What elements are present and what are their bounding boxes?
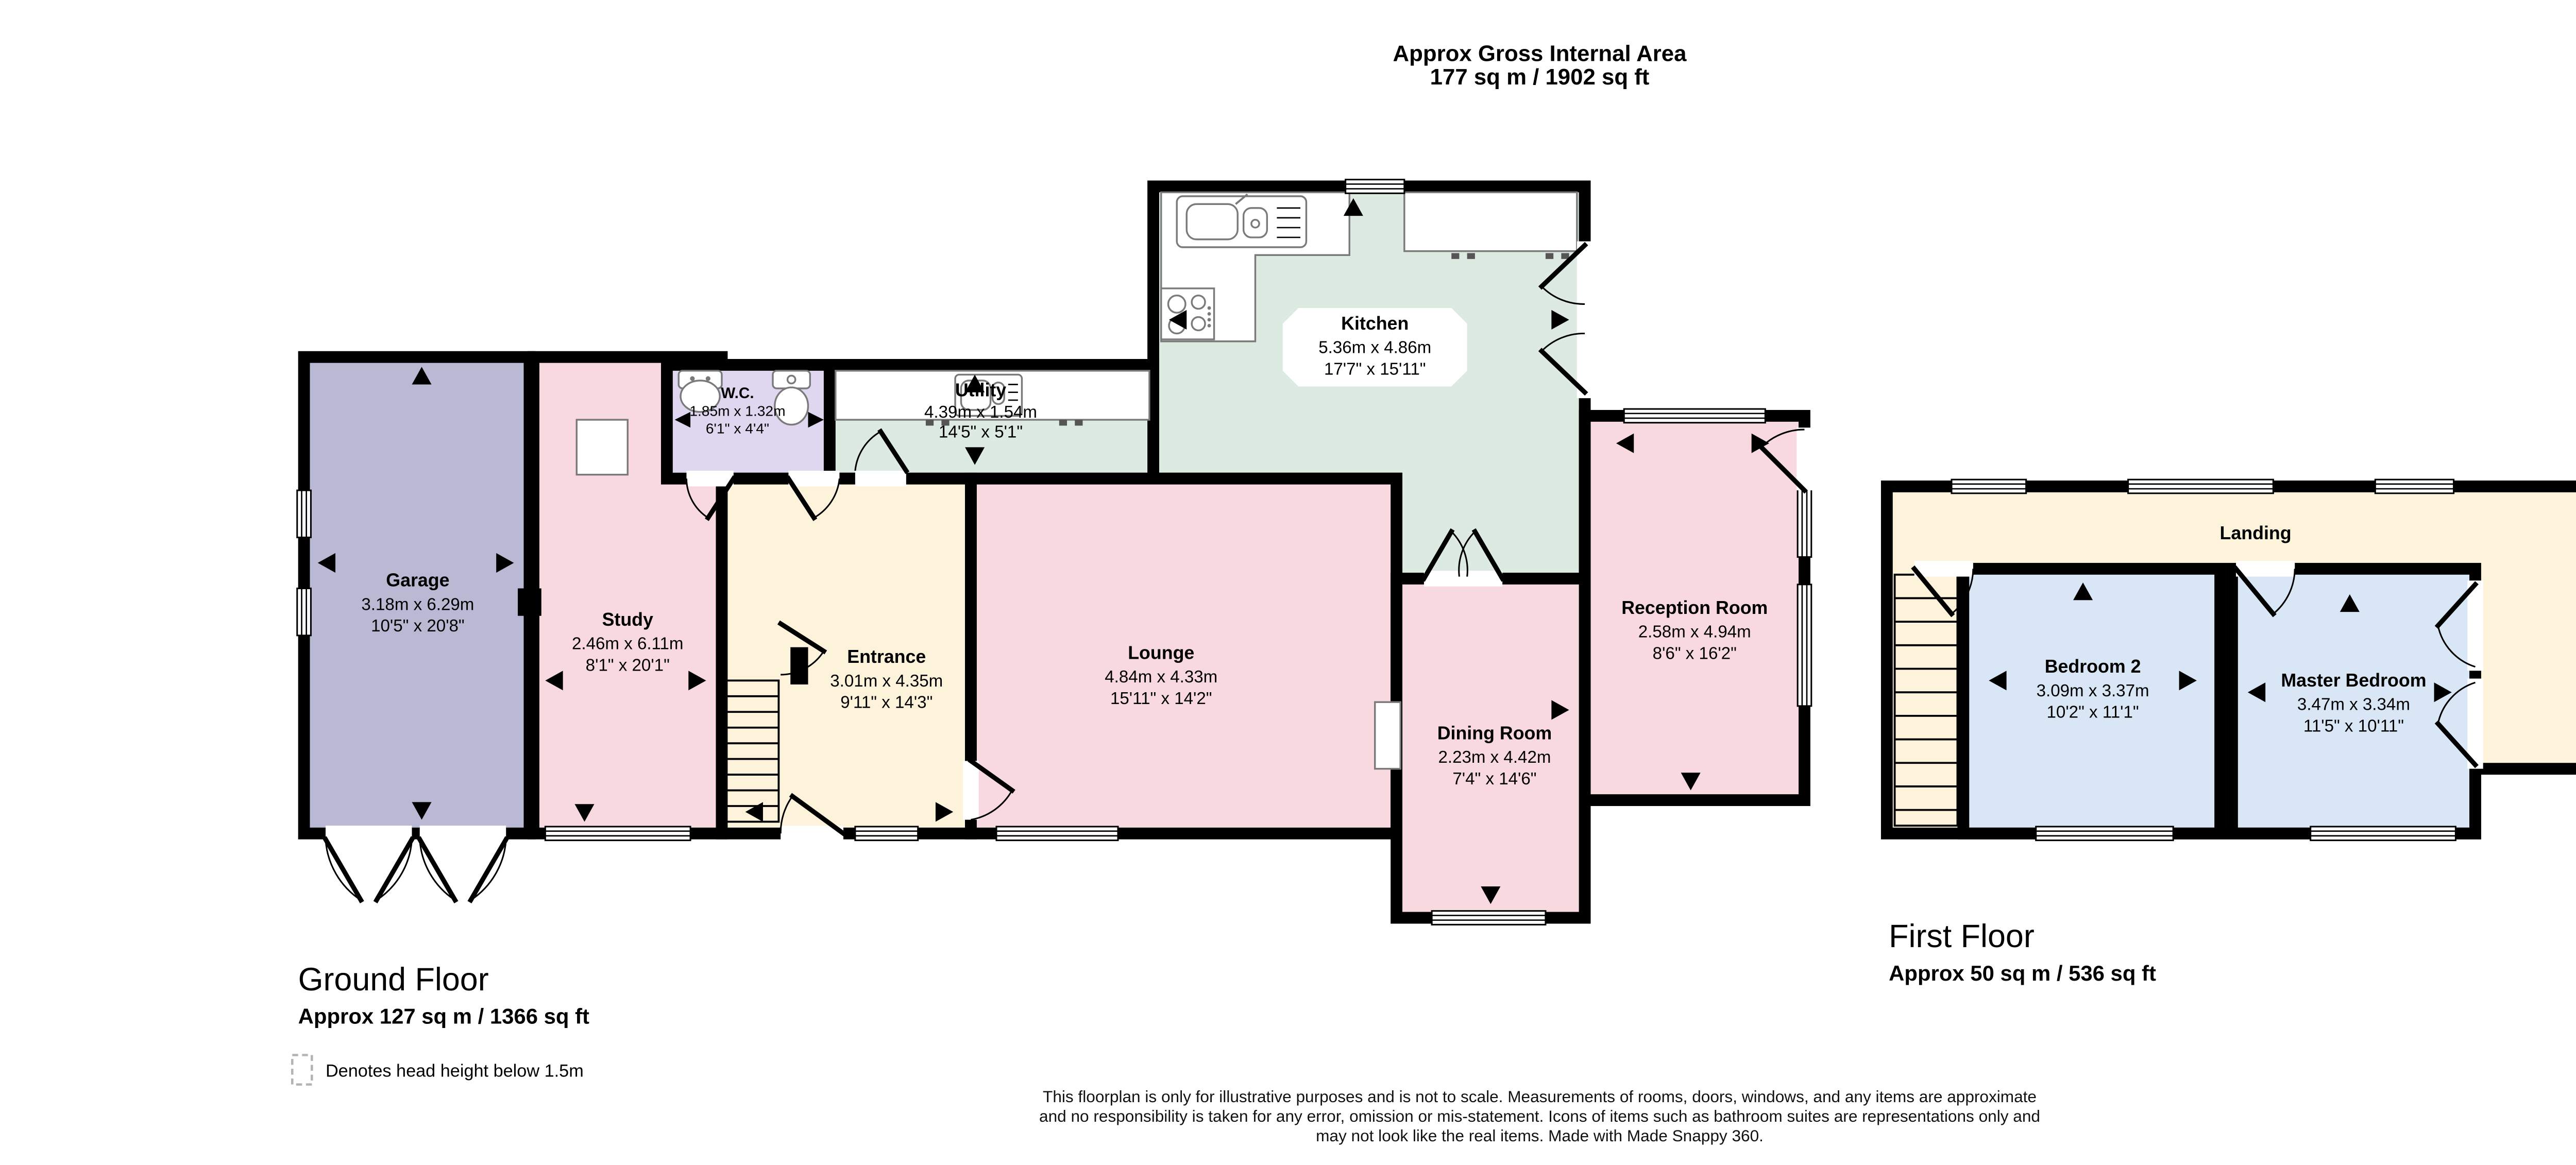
svg-text:9'11" x 14'3": 9'11" x 14'3" bbox=[840, 693, 933, 712]
first-floor-area: Approx 50 sq m / 536 sq ft bbox=[1889, 961, 2156, 985]
svg-text:2.58m x 4.94m: 2.58m x 4.94m bbox=[1638, 623, 1751, 642]
svg-text:8'6" x 16'2": 8'6" x 16'2" bbox=[1653, 644, 1737, 663]
dining-label: Dining Room 2.23m x 4.42m 7'4" x 14'6" bbox=[1437, 723, 1552, 789]
svg-text:6'1" x 4'4": 6'1" x 4'4" bbox=[706, 420, 769, 437]
svg-text:Entrance: Entrance bbox=[847, 646, 926, 667]
void bbox=[2481, 775, 2576, 892]
legend-dashed-box bbox=[292, 1055, 312, 1084]
svg-text:3.47m x 3.34m: 3.47m x 3.34m bbox=[2297, 695, 2410, 714]
header: Approx Gross Internal Area 177 sq m / 19… bbox=[1393, 41, 1687, 90]
ground-floor-plan: Garage 3.18m x 6.29m 10'5" x 20'8" Study… bbox=[292, 180, 1812, 1085]
svg-text:5.36m x 4.86m: 5.36m x 4.86m bbox=[1318, 338, 1431, 357]
ground-floor-area: Approx 127 sq m / 1366 sq ft bbox=[298, 1004, 589, 1029]
wall-pier bbox=[518, 588, 541, 615]
bedroom-2-label: Bedroom 2 3.09m x 3.37m 10'2" x 11'1" bbox=[2037, 656, 2149, 722]
kitchen-label: Kitchen 5.36m x 4.86m 17'7" x 15'11" bbox=[1283, 308, 1467, 386]
svg-text:17'7" x 15'11": 17'7" x 15'11" bbox=[1324, 359, 1426, 379]
hall-wall-stub bbox=[790, 647, 808, 684]
svg-text:Dining Room: Dining Room bbox=[1437, 723, 1552, 744]
landing-label: Landing bbox=[2220, 523, 2292, 543]
svg-text:Study: Study bbox=[602, 609, 653, 630]
gross-area-value: 177 sq m / 1902 sq ft bbox=[1430, 64, 1650, 90]
footer-disclaimer: This floorplan is only for illustrative … bbox=[1039, 1087, 2040, 1145]
svg-text:4.84m x 4.33m: 4.84m x 4.33m bbox=[1105, 667, 1217, 687]
svg-text:Reception Room: Reception Room bbox=[1621, 597, 1768, 618]
svg-text:Bedroom 2: Bedroom 2 bbox=[2045, 656, 2141, 677]
first-floor-title: First Floor bbox=[1889, 918, 2035, 954]
svg-text:10'5" x 20'8": 10'5" x 20'8" bbox=[371, 616, 465, 636]
svg-text:Master Bedroom: Master Bedroom bbox=[2281, 670, 2426, 691]
floorplan-svg: Approx Gross Internal Area 177 sq m / 19… bbox=[0, 0, 2576, 1165]
room-bedroom-2 bbox=[1963, 569, 2221, 833]
footer-line-3: may not look like the real items. Made w… bbox=[1316, 1126, 1764, 1145]
svg-text:3.01m x 4.35m: 3.01m x 4.35m bbox=[830, 672, 943, 691]
sink-icon bbox=[1177, 194, 1306, 247]
gross-area-title: Approx Gross Internal Area bbox=[1393, 41, 1687, 66]
svg-text:3.18m x 6.29m: 3.18m x 6.29m bbox=[361, 595, 474, 614]
hob-icon bbox=[1161, 288, 1214, 339]
svg-text:Lounge: Lounge bbox=[1128, 642, 1194, 663]
svg-text:Garage: Garage bbox=[386, 570, 449, 591]
svg-text:Kitchen: Kitchen bbox=[1341, 313, 1409, 334]
fireplace-icon bbox=[1375, 702, 1400, 768]
svg-text:2.46m x 6.11m: 2.46m x 6.11m bbox=[572, 634, 684, 653]
floorplan-page: { "header": { "title_line1": "Approx Gro… bbox=[0, 0, 2576, 1165]
legend: Denotes head height below 1.5m bbox=[292, 1055, 584, 1084]
svg-text:14'5" x 5'1": 14'5" x 5'1" bbox=[939, 422, 1023, 441]
svg-text:10'2" x 11'1": 10'2" x 11'1" bbox=[2047, 703, 2139, 722]
footer-line-2: and no responsibility is taken for any e… bbox=[1039, 1107, 2040, 1125]
svg-text:11'5" x 10'11": 11'5" x 10'11" bbox=[2303, 716, 2404, 735]
legend-text: Denotes head height below 1.5m bbox=[326, 1061, 584, 1081]
svg-text:7'4" x 14'6": 7'4" x 14'6" bbox=[1452, 769, 1536, 789]
svg-text:2.23m x 4.42m: 2.23m x 4.42m bbox=[1438, 748, 1551, 767]
svg-text:1.85m x 1.32m: 1.85m x 1.32m bbox=[689, 402, 785, 419]
svg-text:15'11" x 14'2": 15'11" x 14'2" bbox=[1110, 689, 1212, 708]
footer-line-1: This floorplan is only for illustrative … bbox=[1043, 1087, 2037, 1106]
room-entrance bbox=[722, 478, 971, 833]
ground-floor-title: Ground Floor bbox=[298, 962, 489, 998]
svg-text:4.39m x 1.54m: 4.39m x 1.54m bbox=[924, 403, 1037, 422]
first-floor-plan: Landing Bedroom 2 3.09m x 3.37m 10'2" x … bbox=[1887, 407, 2576, 985]
svg-text:8'1" x 20'1": 8'1" x 20'1" bbox=[586, 656, 670, 675]
svg-text:3.09m x 3.37m: 3.09m x 3.37m bbox=[2037, 681, 2149, 700]
fireplace-icon bbox=[577, 420, 628, 475]
svg-text:W.C.: W.C. bbox=[721, 385, 754, 402]
